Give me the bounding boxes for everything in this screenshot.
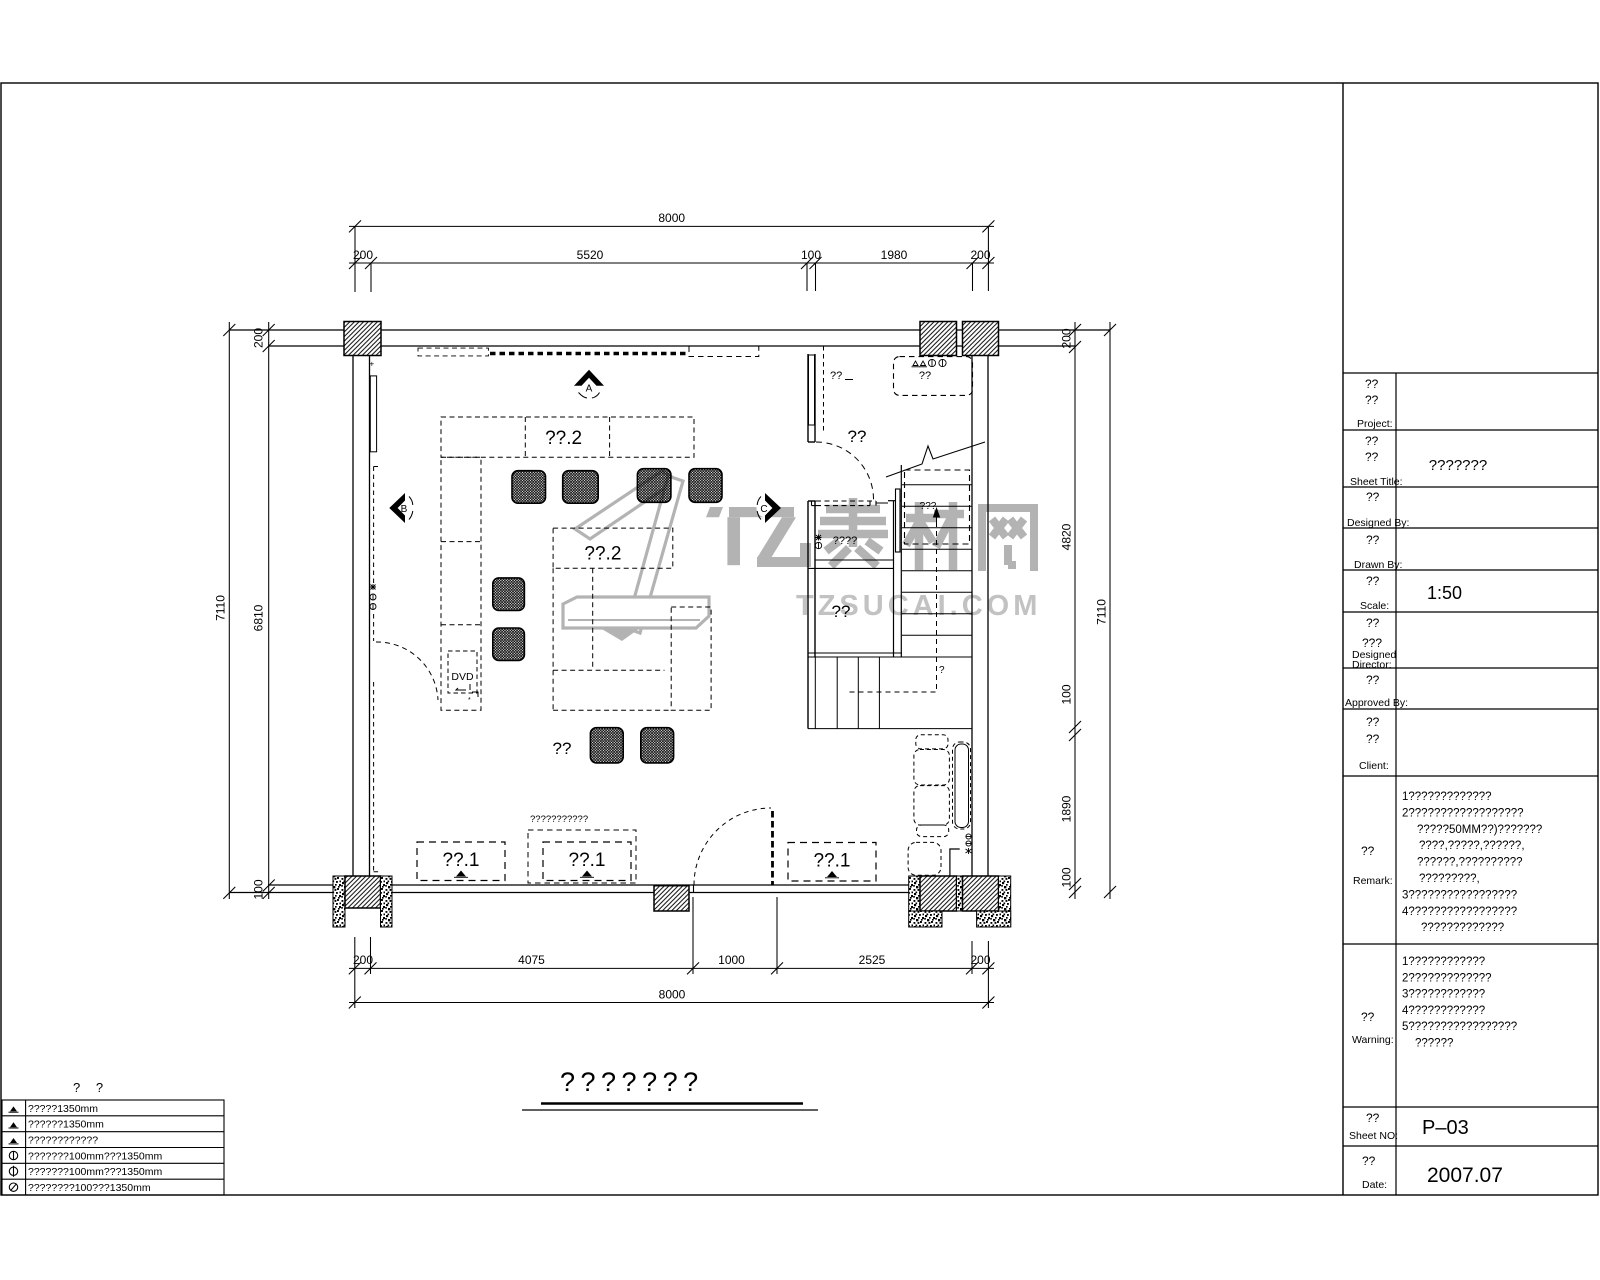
svg-text:8000: 8000 xyxy=(659,988,686,1002)
svg-text:????: ???? xyxy=(833,535,857,547)
svg-text:????????100???1350mm: ????????100???1350mm xyxy=(28,1182,151,1194)
svg-text:1?????????????: 1????????????? xyxy=(1402,791,1492,803)
svg-text:?????1350mm: ?????1350mm xyxy=(28,1103,98,1115)
svg-text:??.2: ??.2 xyxy=(584,544,621,565)
svg-text:Date:: Date: xyxy=(1362,1179,1387,1191)
svg-text:??: ?? xyxy=(830,370,842,382)
svg-text:??????: ?????? xyxy=(1415,1038,1453,1050)
svg-text:Scale:: Scale: xyxy=(1360,600,1389,612)
svg-text:??: ?? xyxy=(1365,450,1379,464)
svg-text:??: ?? xyxy=(832,602,851,621)
svg-text:?????????,: ?????????, xyxy=(1419,873,1480,885)
svg-text:???????100mm???1350mm: ???????100mm???1350mm xyxy=(28,1150,163,1162)
svg-text:???: ??? xyxy=(1362,636,1382,650)
svg-text:100: 100 xyxy=(252,879,266,899)
svg-text:7110: 7110 xyxy=(1095,599,1109,625)
svg-text:+: + xyxy=(370,360,375,369)
svg-text:??: ?? xyxy=(1366,533,1380,547)
svg-text:100: 100 xyxy=(1060,684,1074,704)
svg-text:??????1350mm: ??????1350mm xyxy=(28,1119,104,1131)
svg-text:Client:: Client: xyxy=(1359,760,1389,772)
svg-text:Sheet NO:: Sheet NO: xyxy=(1349,1130,1398,1142)
svg-text:200: 200 xyxy=(353,248,373,262)
svg-text:C: C xyxy=(760,504,767,515)
svg-text:?: ? xyxy=(939,665,945,676)
svg-text:2007.07: 2007.07 xyxy=(1427,1164,1503,1187)
svg-text:2?????????????: 2????????????? xyxy=(1402,972,1492,984)
svg-text:Director:: Director: xyxy=(1352,659,1392,671)
svg-text:??.2: ??.2 xyxy=(545,428,582,449)
svg-text:???????100mm???1350mm: ???????100mm???1350mm xyxy=(28,1166,163,1178)
svg-text:??????,??????????: ??????,?????????? xyxy=(1417,857,1523,869)
svg-text:200: 200 xyxy=(252,328,266,348)
svg-text:2525: 2525 xyxy=(859,953,886,967)
svg-text:???????????: ??????????? xyxy=(530,814,588,825)
svg-text:4????????????: 4???????????? xyxy=(1402,1005,1485,1017)
svg-text:Remark:: Remark: xyxy=(1353,875,1393,887)
svg-text:A: A xyxy=(586,384,593,395)
svg-text:??: ?? xyxy=(1366,715,1380,729)
svg-text:7110: 7110 xyxy=(214,595,228,621)
svg-text:200: 200 xyxy=(970,248,990,262)
svg-text:??: ?? xyxy=(1366,616,1380,630)
svg-text:??: ?? xyxy=(1361,1010,1375,1024)
svg-text:1980: 1980 xyxy=(881,248,908,262)
svg-text:6810: 6810 xyxy=(252,604,266,631)
svg-text:5520: 5520 xyxy=(577,248,604,262)
svg-text:3?????????????????: 3????????????????? xyxy=(1402,889,1517,901)
svg-text:Approved By:: Approved By: xyxy=(1345,697,1408,709)
svg-text:??: ?? xyxy=(1361,844,1375,858)
svg-text:200: 200 xyxy=(353,953,373,967)
svg-text:1:50: 1:50 xyxy=(1427,583,1462,603)
svg-text:4?????????????????: 4????????????????? xyxy=(1402,906,1517,918)
svg-text:???????: ??????? xyxy=(560,1067,704,1097)
svg-text:100: 100 xyxy=(1060,867,1074,887)
svg-text:Designed By:: Designed By: xyxy=(1347,517,1409,529)
svg-text:2??????????????????: 2?????????????????? xyxy=(1402,807,1524,819)
svg-text:P–03: P–03 xyxy=(1422,1117,1469,1139)
svg-text:??: ?? xyxy=(1362,1154,1376,1168)
svg-text:1????????????: 1???????????? xyxy=(1402,956,1485,968)
svg-text:DVD: DVD xyxy=(451,671,474,683)
svg-text:??: ?? xyxy=(848,427,867,446)
svg-text:5?????????????????: 5????????????????? xyxy=(1402,1021,1517,1033)
svg-text:????????????: ???????????? xyxy=(28,1135,98,1147)
svg-text:? ?: ? ? xyxy=(73,1080,109,1095)
svg-text:B: B xyxy=(401,504,408,515)
svg-text:??.1: ??.1 xyxy=(443,850,480,871)
svg-text:1000: 1000 xyxy=(718,953,745,967)
svg-text:Warning:: Warning: xyxy=(1352,1034,1394,1046)
svg-text:200: 200 xyxy=(970,953,990,967)
svg-text:??.1: ??.1 xyxy=(569,850,606,871)
svg-text:Sheet Title:: Sheet Title: xyxy=(1350,476,1403,488)
svg-text:?????50MM??)???????: ?????50MM??)??????? xyxy=(1417,824,1542,836)
svg-text:Drawn By:: Drawn By: xyxy=(1354,559,1402,571)
svg-text:??: ?? xyxy=(1366,490,1380,504)
svg-text:??: ?? xyxy=(1366,1111,1380,1125)
svg-text:Project:: Project: xyxy=(1357,418,1393,430)
svg-text:??: ?? xyxy=(1366,574,1380,588)
svg-text:100: 100 xyxy=(801,248,821,262)
svg-text:3????????????: 3???????????? xyxy=(1402,989,1485,1001)
svg-text:1890: 1890 xyxy=(1060,795,1074,822)
svg-text:4075: 4075 xyxy=(518,953,545,967)
svg-text:???????: ??????? xyxy=(1429,457,1487,474)
svg-text:??: ?? xyxy=(553,739,572,758)
svg-text:??: ?? xyxy=(1366,732,1380,746)
svg-text:??.1: ??.1 xyxy=(814,851,851,872)
svg-text:4820: 4820 xyxy=(1060,523,1074,550)
svg-text:??: ?? xyxy=(1365,377,1379,391)
svg-text:?????????????: ????????????? xyxy=(1421,922,1504,934)
svg-text:*: * xyxy=(468,697,471,704)
svg-text:????,?????,??????,: ????,?????,??????, xyxy=(1419,840,1525,852)
svg-text:??: ?? xyxy=(1365,393,1379,407)
svg-text:??: ?? xyxy=(1366,673,1380,687)
svg-text:8000: 8000 xyxy=(658,211,685,225)
svg-text:??: ?? xyxy=(1365,434,1379,448)
svg-text:200: 200 xyxy=(1060,328,1074,348)
svg-text:???: ??? xyxy=(920,501,937,512)
svg-text:??: ?? xyxy=(919,370,931,382)
